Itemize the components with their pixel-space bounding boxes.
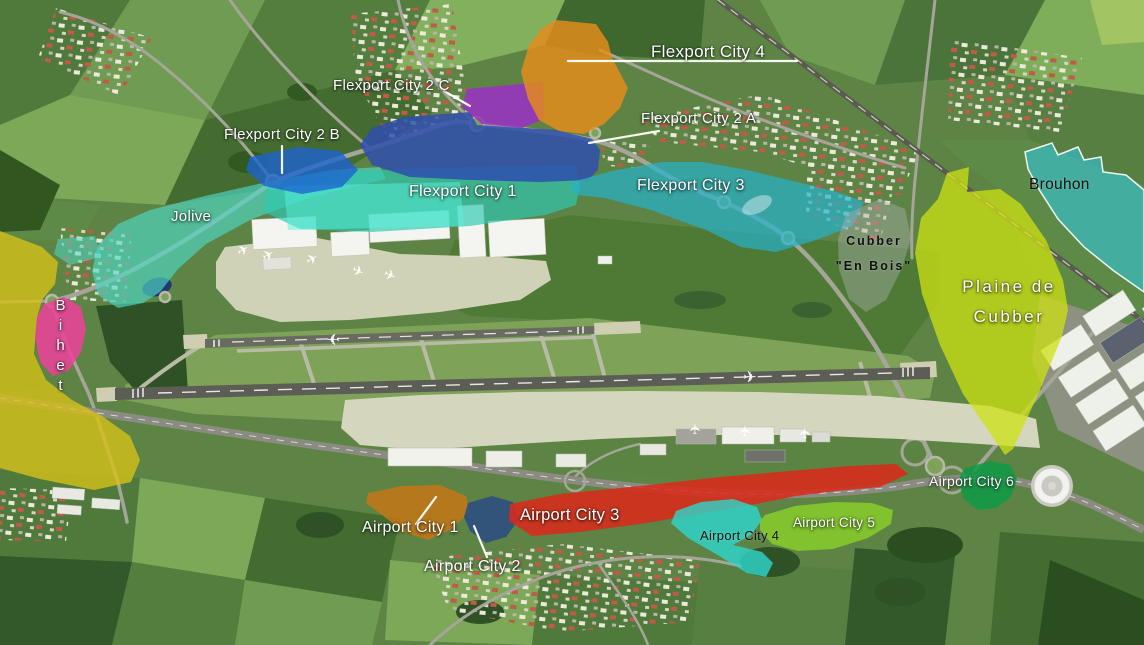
airplane-icon: ✈ — [737, 425, 753, 437]
airplane-icon: ✈ — [326, 329, 339, 346]
airplane-icon: ✈ — [743, 370, 756, 387]
airplane-icon: ✈ — [687, 423, 703, 435]
ring-building — [1031, 465, 1073, 507]
map-canvas: ✈ ✈ ✈ ✈ ✈ ✈ ✈ ✈ ✈ ✈ — [0, 0, 1144, 645]
airplane-icon: ✈ — [797, 427, 813, 439]
aerial-map: ✈ ✈ ✈ ✈ ✈ ✈ ✈ ✈ ✈ ✈ — [0, 0, 1144, 645]
